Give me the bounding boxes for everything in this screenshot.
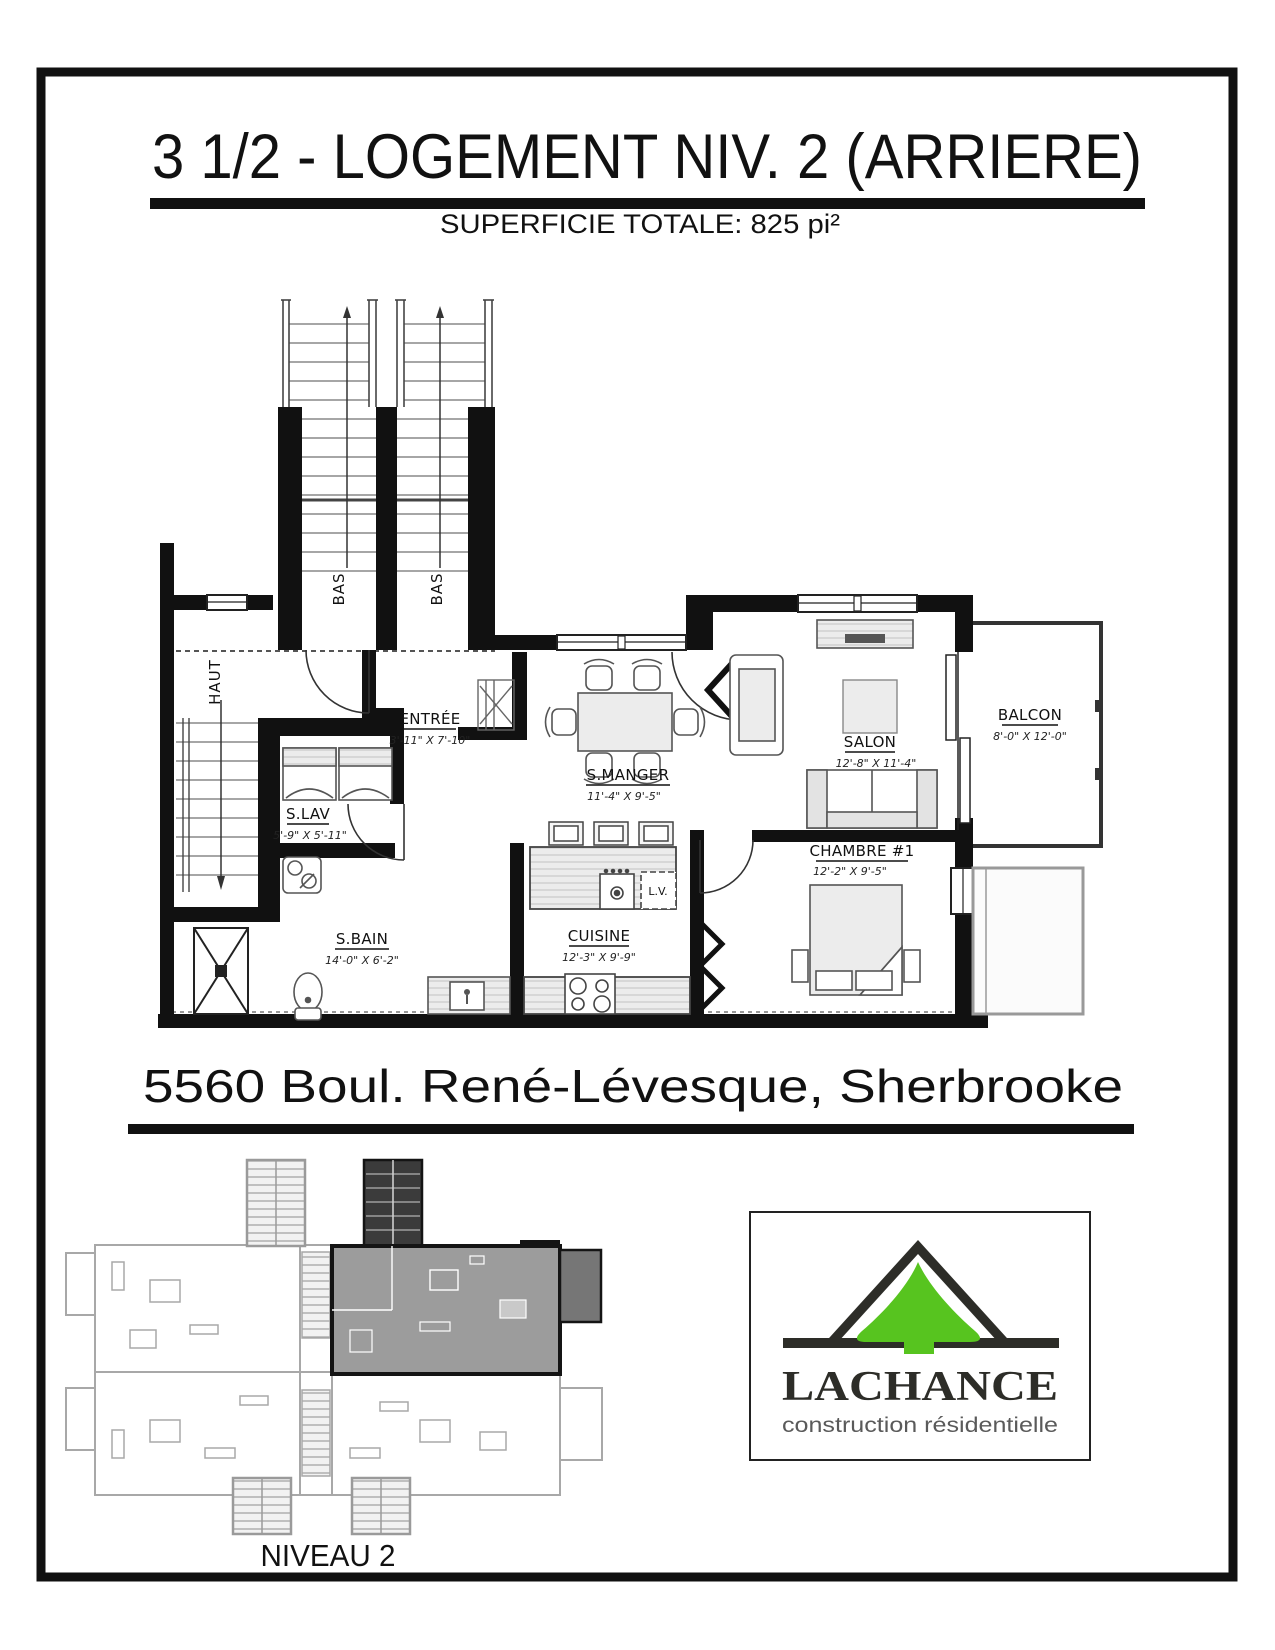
toilet bbox=[294, 973, 322, 1020]
dishwasher-label: L.V. bbox=[648, 885, 667, 898]
nightstand bbox=[904, 950, 920, 982]
main-floorplan: BAS BAS bbox=[158, 300, 1103, 1028]
header: 3 1/2 - LOGEMENT NIV. 2 (ARRIERE) SUPERF… bbox=[150, 122, 1145, 239]
svg-text:S.MANGER: S.MANGER bbox=[587, 766, 670, 784]
svg-text:CUISINE: CUISINE bbox=[568, 927, 631, 945]
corridor-stairs bbox=[302, 1390, 330, 1476]
stairs-right-upper bbox=[404, 313, 485, 407]
dining-table bbox=[578, 693, 672, 751]
range bbox=[565, 974, 615, 1014]
svg-text:ENTRÉE: ENTRÉE bbox=[399, 709, 460, 728]
address-underline bbox=[128, 1124, 1134, 1134]
svg-text:12'-2" X 9'-5": 12'-2" X 9'-5" bbox=[813, 865, 887, 878]
overview-plan: NIVEAU 2 bbox=[66, 1160, 602, 1573]
svg-text:11'-4" X 9'-5": 11'-4" X 9'-5" bbox=[587, 790, 661, 803]
stair-label-bas-right: BAS bbox=[428, 572, 446, 605]
label-sbain: S.BAIN 14'-0" X 6'-2" bbox=[325, 930, 399, 967]
svg-text:S.BAIN: S.BAIN bbox=[336, 930, 388, 948]
logo-name: LACHANCE bbox=[782, 1364, 1058, 1410]
svg-text:14'-0" X 6'-2": 14'-0" X 6'-2" bbox=[325, 954, 399, 967]
sofa bbox=[807, 770, 937, 828]
label-balcon: BALCON 8'-0" X 12'-0" bbox=[993, 706, 1067, 743]
logo-block: LACHANCE construction résidentielle bbox=[750, 1212, 1090, 1460]
svg-text:8'-0" X 12'-0": 8'-0" X 12'-0" bbox=[993, 730, 1067, 743]
balcony-post bbox=[1095, 700, 1103, 712]
bath-vanity bbox=[428, 977, 510, 1014]
dryer bbox=[339, 748, 392, 800]
kitchen: L.V. bbox=[524, 822, 690, 1014]
corridor-stairs bbox=[302, 1252, 330, 1338]
bar-stools bbox=[549, 822, 673, 845]
laundry-sink bbox=[283, 857, 321, 893]
svg-text:SALON: SALON bbox=[844, 733, 896, 751]
wall bbox=[468, 407, 495, 650]
total-area-label: SUPERFICIE TOTALE: 825 pi² bbox=[440, 209, 840, 239]
bedroom bbox=[700, 885, 920, 1010]
unit-stairs: HAUT bbox=[176, 659, 258, 892]
door-chambre bbox=[700, 840, 753, 893]
flyer-canvas: 3 1/2 - LOGEMENT NIV. 2 (ARRIERE) SUPERF… bbox=[0, 0, 1275, 1650]
window-salon bbox=[798, 595, 917, 612]
living-room bbox=[730, 620, 937, 828]
washer bbox=[283, 748, 336, 800]
stairs-left-upper bbox=[289, 313, 369, 407]
wall bbox=[278, 407, 302, 650]
label-cuisine: CUISINE 12'-3" X 9'-9" bbox=[562, 927, 636, 964]
dining-set bbox=[546, 660, 705, 784]
armchair bbox=[730, 655, 783, 755]
stairs-left-lower bbox=[302, 407, 376, 575]
neighbour-balcony bbox=[973, 868, 1083, 1014]
svg-text:12'-8" X 11'-4": 12'-8" X 11'-4" bbox=[836, 757, 917, 770]
overview-label: NIVEAU 2 bbox=[261, 1538, 396, 1573]
flyer-page: 3 1/2 - LOGEMENT NIV. 2 (ARRIERE) SUPERF… bbox=[0, 0, 1275, 1650]
cooktop bbox=[600, 870, 634, 910]
page-title: 3 1/2 - LOGEMENT NIV. 2 (ARRIERE) bbox=[152, 122, 1142, 192]
svg-text:3'-11" X 7'-10": 3'-11" X 7'-10" bbox=[390, 734, 471, 747]
label-smanger: S.MANGER 11'-4" X 9'-5" bbox=[586, 766, 670, 803]
bed bbox=[810, 885, 902, 995]
stair-arrow-icon bbox=[436, 306, 444, 318]
stair-label-haut: HAUT bbox=[206, 659, 224, 705]
window-top-left bbox=[207, 595, 247, 610]
door-stairA bbox=[306, 650, 369, 713]
title-underline bbox=[150, 198, 1145, 209]
svg-text:5'-9" X 5'-11": 5'-9" X 5'-11" bbox=[273, 829, 347, 842]
logo-tagline: construction résidentielle bbox=[782, 1414, 1058, 1437]
overview-highlighted-unit bbox=[332, 1240, 601, 1374]
tv-console bbox=[817, 620, 913, 648]
nightstand bbox=[792, 950, 808, 982]
window-dining bbox=[557, 635, 686, 650]
window-chambre bbox=[951, 868, 975, 914]
stair-label-bas-left: BAS bbox=[330, 572, 348, 605]
svg-text:CHAMBRE #1: CHAMBRE #1 bbox=[809, 842, 914, 860]
building-stairwells: BAS BAS bbox=[278, 300, 495, 650]
label-slav: S.LAV 5'-9" X 5'-11" bbox=[273, 805, 347, 842]
address-text: 5560 Boul. René-Lévesque, Sherbrooke bbox=[143, 1060, 1123, 1112]
svg-text:S.LAV: S.LAV bbox=[286, 805, 330, 823]
dishwasher: L.V. bbox=[641, 872, 676, 909]
svg-text:12'-3" X 9'-9": 12'-3" X 9'-9" bbox=[562, 951, 636, 964]
patio-door bbox=[946, 652, 970, 830]
svg-text:BALCON: BALCON bbox=[998, 706, 1062, 724]
wall bbox=[376, 407, 397, 650]
label-salon: SALON 12'-8" X 11'-4" bbox=[836, 733, 917, 770]
stair-arrow-icon bbox=[343, 306, 351, 318]
balcony-post bbox=[1095, 768, 1103, 780]
address-block: 5560 Boul. René-Lévesque, Sherbrooke bbox=[128, 1060, 1134, 1134]
label-chambre: CHAMBRE #1 12'-2" X 9'-5" bbox=[809, 842, 914, 878]
shower bbox=[194, 928, 248, 1014]
entry-closet bbox=[478, 680, 514, 730]
ottoman bbox=[843, 680, 897, 733]
overview-stairshaft-dark bbox=[364, 1160, 422, 1246]
stairs-right-lower bbox=[397, 407, 468, 575]
